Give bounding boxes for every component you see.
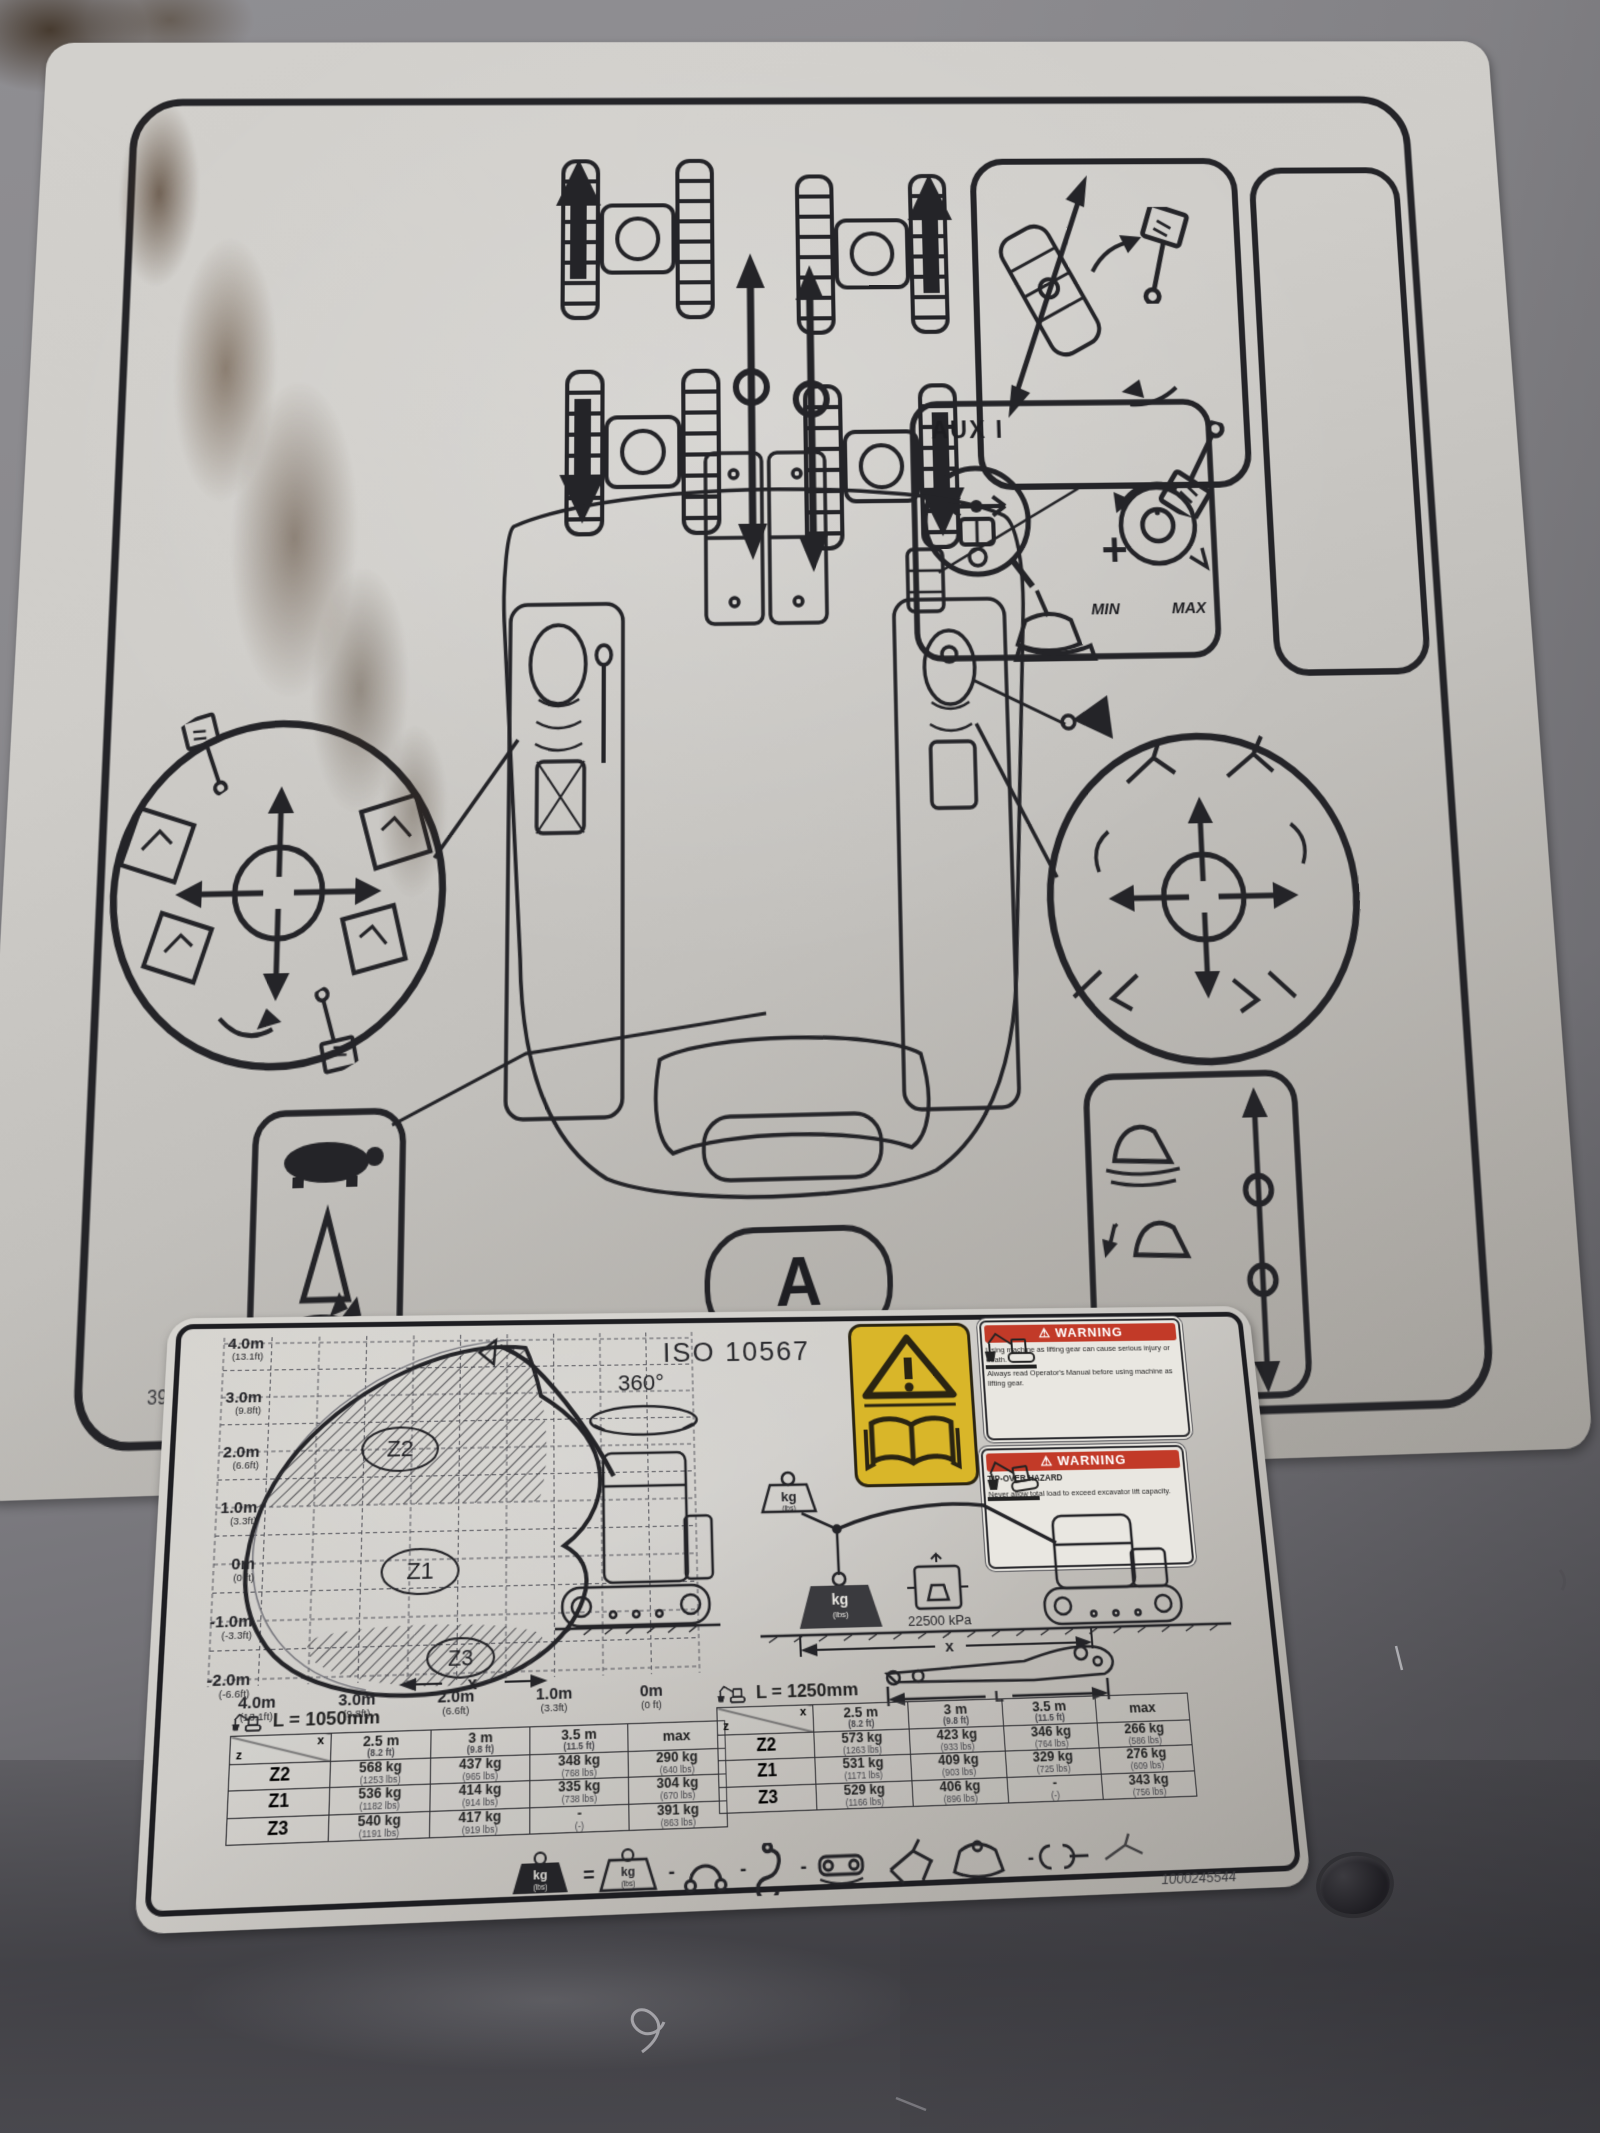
table-corner-cell: zx <box>229 1733 331 1765</box>
table-corner-cell: zx <box>717 1705 814 1736</box>
swing-360-label: 360° <box>618 1370 665 1396</box>
blade-float-icon <box>1105 1126 1181 1186</box>
speed-callout-line <box>392 1013 767 1125</box>
chart-y-ticks: 4.0m(13.1ft)3.0m(9.8ft)2.0m(6.6ft)1.0m(3… <box>206 1335 264 1701</box>
caution-pictogram-box <box>848 1323 980 1488</box>
working-range-chart: Z2 Z1 Z3 360° <box>177 1324 726 1733</box>
tick-label: 3.0m <box>225 1389 262 1407</box>
left-joystick <box>529 624 611 833</box>
table-value-cell: 531 kg(1171 lbs) <box>815 1755 912 1784</box>
equals-sign: = <box>583 1863 595 1887</box>
table-col-header: 3.5 m(11.5 ft) <box>530 1724 628 1755</box>
svg-text:kg: kg <box>533 1869 547 1883</box>
hanging-weight-icon: kg (lbs) <box>798 1572 883 1629</box>
right-pattern-circle <box>1045 734 1366 1066</box>
bucket-glyph <box>175 706 250 797</box>
table-value-cell: 346 kg(764 lbs) <box>1004 1723 1100 1751</box>
svg-text:(lbs): (lbs) <box>621 1880 635 1889</box>
tick-label: (13.1ft) <box>232 1351 264 1363</box>
travel-lever-icon <box>735 253 830 573</box>
coupler-icon <box>819 1855 863 1884</box>
table-col-header: 2.5 m(8.2 ft) <box>813 1702 909 1732</box>
table-value-cell: -(-) <box>530 1804 629 1834</box>
table-value-cell: 304 kg(670 lbs) <box>628 1774 726 1804</box>
table-value-cell: 335 kg(738 lbs) <box>530 1778 629 1808</box>
zone-excavator-icon <box>716 1682 748 1705</box>
right-callout-line <box>976 722 1057 879</box>
pin-grab-icon <box>1039 1844 1089 1868</box>
svg-text:kg: kg <box>831 1591 849 1608</box>
table-col-header: 3 m(9.8 ft) <box>431 1727 530 1758</box>
table-col-header: 3 m(9.8 ft) <box>908 1699 1004 1729</box>
table-value-cell: 266 kg(586 lbs) <box>1097 1720 1192 1748</box>
table-col-header: max <box>1095 1693 1190 1723</box>
weight-kg-label: kg <box>781 1489 797 1505</box>
scratch-mark <box>896 2098 926 2110</box>
table-value-cell: 348 kg(768 lbs) <box>530 1752 629 1781</box>
svg-text:(lbs): (lbs) <box>832 1610 849 1620</box>
capacity-table: zx2.5 m(8.2 ft)3 m(9.8 ft)3.5 m(11.5 ft)… <box>716 1693 1197 1814</box>
seat <box>656 1034 931 1182</box>
neutral-triangle-icon <box>303 1214 350 1300</box>
svg-text:(lbs): (lbs) <box>533 1884 547 1893</box>
spread-arm-icon <box>1103 1833 1142 1859</box>
table-col-header: 2.5 m(8.2 ft) <box>331 1730 432 1761</box>
left-callout-line <box>434 740 518 858</box>
four-way-arrows-icon <box>1105 795 1304 1001</box>
svg-text:-: - <box>800 1855 807 1878</box>
read-manual-icon <box>865 1418 960 1468</box>
table-value-cell: 573 kg(1263 lbs) <box>814 1729 911 1758</box>
black-weight-icon: kg (lbs) <box>513 1852 568 1895</box>
min-label: MIN <box>1091 600 1120 619</box>
svg-text:x: x <box>945 1637 955 1655</box>
lifting-warning-box: ⚠ WARNING Using machine as lifting gear … <box>979 1318 1191 1440</box>
table-value-cell: 409 kg(903 lbs) <box>911 1751 1007 1780</box>
table-col-header: 3.5 m(11.5 ft) <box>1002 1696 1097 1726</box>
aux1-label: AUX I <box>931 416 1005 445</box>
tick-label: (0 ft) <box>233 1572 255 1584</box>
table-value-cell: 437 kg(965 lbs) <box>430 1755 530 1785</box>
scratch-mark <box>632 2010 664 2052</box>
tick-label: (3.3ft) <box>230 1516 257 1528</box>
joystick-icon <box>1014 590 1095 660</box>
light-reflection <box>60 1905 1040 2095</box>
zone-excavator-icon <box>230 1710 264 1734</box>
svg-text:-: - <box>740 1857 747 1880</box>
tick-label: 2.0m <box>223 1443 260 1461</box>
diagram-excavator <box>1038 1513 1183 1624</box>
table-value-cell: 391 kg(863 lbs) <box>629 1800 728 1830</box>
bucket-sling-icon <box>953 1841 1004 1878</box>
horn-icon <box>973 678 1113 741</box>
tick-label: 0m <box>231 1555 255 1574</box>
capacity-table-1250: L = 1250mmzx2.5 m(8.2 ft)3 m(9.8 ft)3.5 … <box>716 1669 1198 1814</box>
left-pattern-circle <box>105 702 445 1087</box>
svg-text:-: - <box>1027 1846 1035 1869</box>
tick-label: (-3.3ft) <box>221 1630 252 1643</box>
blade-down-icon <box>1102 1222 1188 1258</box>
zone-z2-label: Z2 <box>386 1435 413 1461</box>
table-value-cell: 540 kg(1191 lbs) <box>328 1811 430 1841</box>
tick-label: 4.0m <box>228 1335 265 1353</box>
scratch-mark <box>1396 1646 1402 1670</box>
sling-arm-icon <box>889 1839 934 1884</box>
table-value-cell: 343 kg(756 lbs) <box>1101 1770 1197 1799</box>
table-value-cell: 414 kg(914 lbs) <box>430 1781 530 1811</box>
capacity-table-1050: L = 1050mmzx2.5 m(8.2 ft)3 m(9.8 ft)3.5 … <box>225 1696 728 1846</box>
tick-label: (9.8ft) <box>235 1405 262 1417</box>
ground-pressure-icon <box>905 1553 969 1609</box>
table-value-cell: 329 kg(725 lbs) <box>1005 1748 1101 1777</box>
travel-direction-icons <box>553 158 966 575</box>
tick-label: (6.6ft) <box>232 1460 259 1472</box>
tick-label: 1.0m <box>220 1499 258 1518</box>
table-col-header: max <box>628 1721 726 1752</box>
table-zone-cell: Z1 <box>718 1758 816 1787</box>
scratch-mark <box>1560 1570 1565 1590</box>
warning-triangle-icon: ⚠ <box>1038 1326 1051 1341</box>
right-console <box>894 598 1020 1109</box>
operating-pattern-decal: + <box>0 41 1593 1502</box>
table-zone-cell: Z1 <box>227 1788 330 1818</box>
turtle-icon <box>283 1141 384 1189</box>
max-label: MAX <box>1171 599 1206 618</box>
table-value-cell: 417 kg(919 lbs) <box>429 1807 529 1837</box>
boom-swing-right-icon <box>1141 204 1192 303</box>
table-value-cell: 536 kg(1182 lbs) <box>329 1784 430 1814</box>
table-zone-cell: Z3 <box>719 1784 817 1814</box>
pressure-label: 22500 kPa <box>907 1612 972 1630</box>
lift-capacity-decal: ISO 10567 Z2 Z1 Z3 <box>134 1306 1311 1935</box>
table-value-cell: -(-) <box>1007 1774 1103 1803</box>
lifting-machine-pictogram <box>981 1322 1041 1375</box>
empty-option-box <box>1251 170 1428 673</box>
table-value-cell: 276 kg(609 lbs) <box>1099 1745 1194 1774</box>
cab-ceiling-photo: + <box>0 0 1600 2133</box>
table-zone-cell: Z2 <box>718 1732 815 1761</box>
plus-sign: + <box>1100 524 1129 576</box>
zone3-hatch <box>306 1622 543 1690</box>
table-value-cell: 423 kg(933 lbs) <box>909 1726 1005 1755</box>
panel-plug <box>1316 1851 1393 1918</box>
svg-text:(lbs): (lbs) <box>782 1505 796 1513</box>
svg-text:kg: kg <box>621 1865 635 1879</box>
table-value-cell: 529 kg(1166 lbs) <box>816 1780 913 1809</box>
table-value-cell: 406 kg(896 lbs) <box>912 1777 1009 1806</box>
zone-z3-label: Z3 <box>448 1647 473 1672</box>
machine-top-view <box>391 449 1131 1207</box>
table-zone-cell: Z2 <box>228 1761 330 1791</box>
zone-z1-label: Z1 <box>406 1557 434 1584</box>
table-value-cell: 568 kg(1253 lbs) <box>330 1758 431 1788</box>
capacity-table: zx2.5 m(8.2 ft)3 m(9.8 ft)3.5 m(11.5 ft)… <box>225 1720 728 1846</box>
outline-weight-icon: kg (lbs) <box>600 1848 655 1890</box>
table-zone-cell: Z3 <box>226 1814 329 1845</box>
svg-text:-: - <box>668 1860 675 1883</box>
table-value-cell: 290 kg(640 lbs) <box>628 1748 726 1777</box>
